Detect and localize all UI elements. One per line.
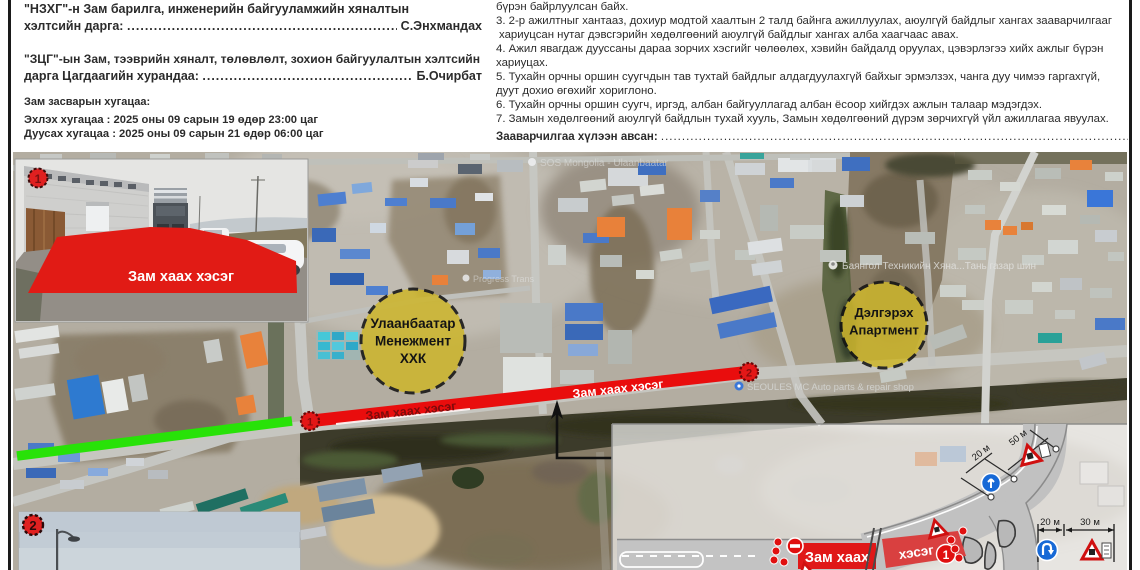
svg-text:2: 2 — [746, 368, 752, 380]
svg-text:1: 1 — [307, 417, 313, 429]
svg-text:1: 1 — [943, 548, 950, 562]
svg-text:Зам хаах хэсэг: Зам хаах хэсэг — [128, 269, 234, 285]
svg-text:Улаанбаатар: Улаанбаатар — [370, 316, 455, 331]
svg-text:SEOULES MC Auto parts & repair: SEOULES MC Auto parts & repair shop — [747, 382, 914, 393]
svg-text:Дэлгэрэх: Дэлгэрэх — [855, 305, 915, 320]
svg-text:Баянгол Техникийн Хяна...Тань: Баянгол Техникийн Хяна...Тань газар шин — [842, 261, 1036, 272]
svg-text:SOS Mongolia - Ulaanbaatar: SOS Mongolia - Ulaanbaatar — [540, 158, 669, 169]
svg-text:1: 1 — [35, 172, 42, 186]
svg-text:Зам хаах: Зам хаах — [805, 550, 869, 566]
svg-text:20 м: 20 м — [1040, 517, 1060, 528]
svg-text:ХХК: ХХК — [400, 351, 427, 366]
svg-text:Менежмент: Менежмент — [375, 334, 451, 349]
svg-text:30 м: 30 м — [1080, 517, 1100, 528]
svg-text:Апартмент: Апартмент — [849, 323, 919, 338]
svg-text:2: 2 — [29, 518, 36, 533]
svg-text:Progress Trans: Progress Trans — [473, 274, 535, 284]
